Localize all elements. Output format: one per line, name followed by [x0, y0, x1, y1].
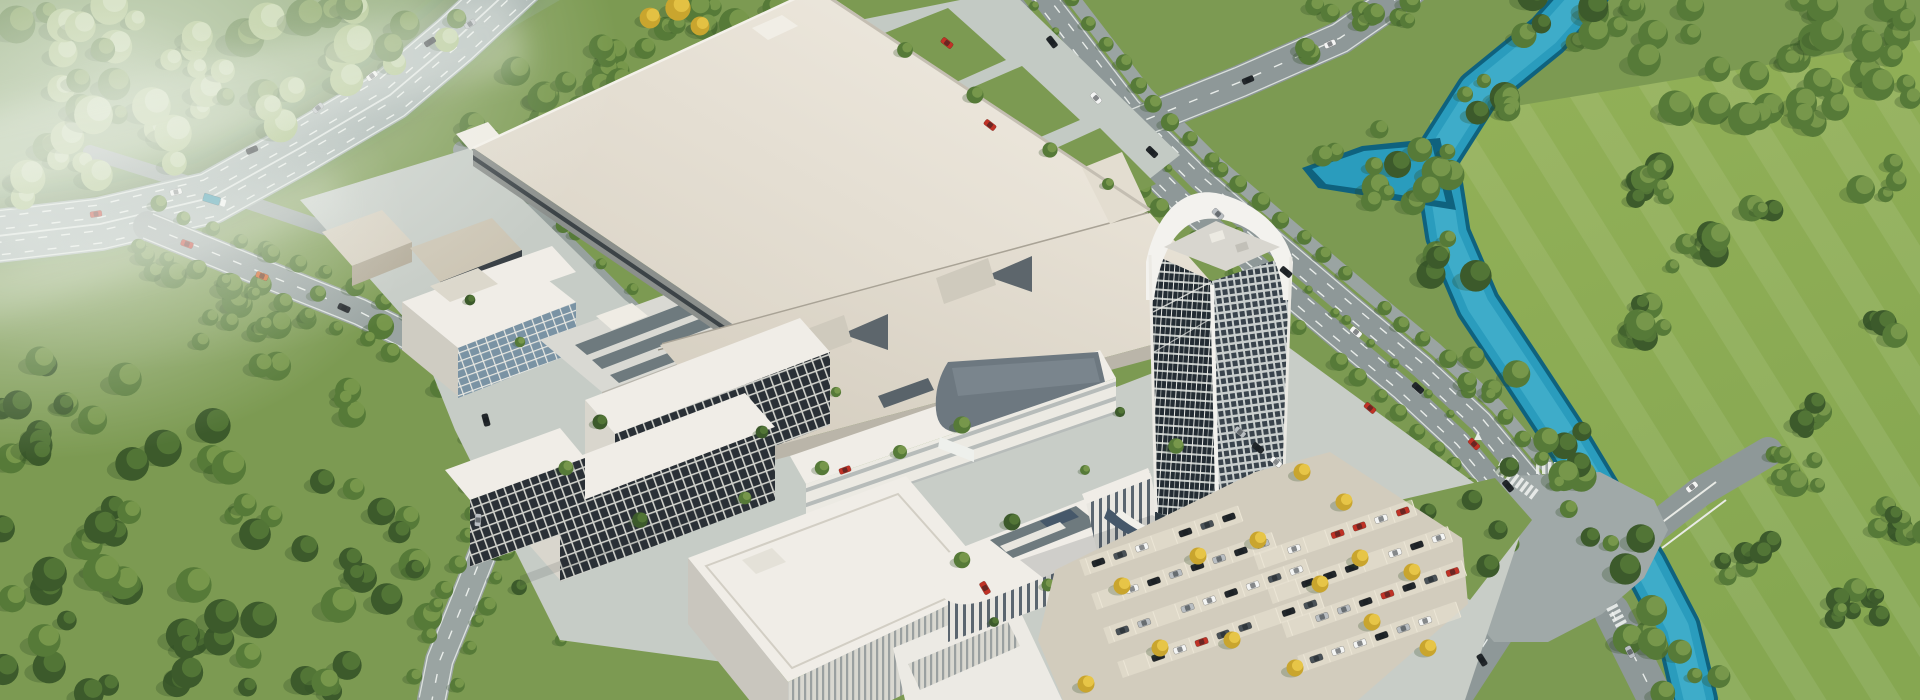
tree-highlight — [1218, 163, 1228, 173]
tree-highlight — [1862, 31, 1882, 51]
tree-highlight — [1838, 603, 1847, 612]
tree-highlight — [1445, 350, 1456, 361]
tree-highlight — [1343, 267, 1352, 276]
tree-highlight — [494, 572, 502, 580]
tree-highlight — [1209, 153, 1218, 162]
tree-highlight — [1646, 596, 1665, 615]
tree-highlight — [1831, 94, 1848, 111]
tree-highlight — [1376, 121, 1387, 132]
tree-highlight — [697, 17, 709, 29]
tree-highlight — [1709, 94, 1729, 114]
tree-highlight — [350, 565, 363, 578]
tree-highlight — [332, 588, 354, 610]
tree-highlight — [1796, 104, 1813, 121]
tree-highlight — [1876, 606, 1889, 619]
tree-highlight — [434, 599, 443, 608]
tree-highlight — [1083, 465, 1089, 471]
tree-highlight — [1470, 261, 1490, 281]
tree-highlight — [1769, 201, 1782, 214]
tree-highlight — [1296, 320, 1305, 329]
tree-highlight — [1739, 103, 1760, 124]
tree-highlight — [44, 558, 66, 580]
tree-highlight — [1851, 579, 1866, 594]
tree-highlight — [1715, 666, 1729, 680]
tree-highlight — [241, 494, 255, 508]
tree-highlight — [95, 556, 119, 580]
tree-highlight — [597, 415, 606, 424]
tree-highlight — [1538, 15, 1550, 27]
tree-highlight — [1856, 176, 1874, 194]
tree-highlight — [1903, 75, 1915, 87]
aerial-campus-rendering — [0, 0, 1920, 700]
tree-highlight — [321, 670, 338, 687]
tree-highlight — [441, 582, 452, 593]
tree-highlight — [1121, 55, 1131, 65]
tree-highlight — [1445, 231, 1455, 241]
tree-highlight — [455, 556, 466, 567]
tree-highlight — [1608, 536, 1618, 546]
tree-highlight — [1891, 324, 1907, 340]
tree-highlight — [1872, 69, 1892, 89]
tree-highlight — [1907, 88, 1920, 101]
tree-highlight — [1167, 114, 1178, 125]
tree-highlight — [396, 522, 410, 536]
tree-highlight — [1587, 528, 1599, 540]
tree-highlight — [834, 387, 840, 393]
tree-highlight — [959, 552, 969, 562]
tree-highlight — [1893, 171, 1906, 184]
tree-highlight — [1767, 532, 1781, 546]
tree-highlight — [340, 391, 351, 402]
tree-highlight — [1554, 477, 1564, 487]
tree-highlight — [972, 87, 983, 98]
tree-highlight — [1888, 45, 1902, 59]
tree-highlight — [125, 501, 140, 516]
tree-highlight — [426, 628, 436, 638]
tree-highlight — [1692, 669, 1701, 678]
tree-highlight — [1891, 507, 1902, 518]
tree-highlight — [1647, 628, 1665, 646]
tree-highlight — [1136, 78, 1146, 88]
tree-highlight — [1566, 501, 1577, 512]
tree-highlight — [318, 470, 333, 485]
tree-highlight — [1368, 192, 1381, 205]
tree-highlight — [412, 669, 422, 679]
tower-southwest-face — [1150, 253, 1218, 533]
tree-highlight — [1345, 315, 1351, 321]
tree-highlight — [1798, 410, 1813, 425]
tree-highlight — [1302, 231, 1311, 240]
tree-highlight — [1258, 193, 1270, 205]
tree-highlight — [1506, 458, 1518, 470]
tree-highlight — [1173, 439, 1183, 449]
rendering-canvas — [0, 0, 1920, 700]
tree-highlight — [1150, 96, 1161, 107]
tree-highlight — [1813, 69, 1831, 87]
tree-highlight — [1757, 542, 1771, 556]
tree-highlight — [1486, 389, 1495, 398]
tree-highlight — [1790, 471, 1807, 488]
tree-highlight — [1620, 554, 1640, 574]
tree-highlight — [1713, 57, 1729, 73]
tree-highlight — [641, 39, 654, 52]
tree-highlight — [1451, 458, 1461, 468]
tree-highlight — [1811, 393, 1824, 406]
tree-highlight — [244, 678, 256, 690]
tree-highlight — [1663, 189, 1673, 199]
tree-highlight — [1670, 260, 1679, 269]
tree-highlight — [743, 492, 751, 500]
tree-highlight — [1638, 44, 1659, 65]
tree-highlight — [1379, 390, 1387, 398]
tree-highlight — [1579, 423, 1591, 435]
tree-highlight — [1874, 590, 1883, 599]
tree-highlight — [1118, 407, 1124, 413]
tree-highlight — [84, 679, 103, 698]
tree-highlight — [1654, 160, 1666, 172]
tree-highlight — [1167, 165, 1172, 170]
tree-highlight — [1669, 92, 1690, 113]
tree-highlight — [1086, 17, 1095, 26]
tree-highlight — [1474, 102, 1489, 117]
tree-highlight — [1636, 525, 1654, 543]
tree-highlight — [223, 452, 244, 473]
tree-highlight — [1327, 5, 1339, 17]
tree-highlight — [1812, 453, 1822, 463]
tree-highlight — [8, 586, 25, 603]
tree-highlight — [1277, 212, 1288, 223]
tree-highlight — [1321, 247, 1331, 257]
tree-highlight — [350, 479, 364, 493]
tree-highlight — [1520, 431, 1530, 441]
tree-highlight — [959, 417, 970, 428]
tree-highlight — [1432, 157, 1451, 176]
tree-highlight — [244, 644, 260, 660]
tree-highlight — [1687, 25, 1700, 38]
tree-highlight — [1632, 190, 1644, 202]
tree-highlight — [455, 679, 464, 688]
tree-highlight — [646, 8, 659, 21]
tree-highlight — [1834, 588, 1849, 603]
tree-highlight — [268, 506, 282, 520]
tree-highlight — [1422, 177, 1439, 194]
tree-highlight — [1495, 521, 1507, 533]
tree-highlight — [1416, 138, 1431, 153]
tree-highlight — [898, 446, 907, 455]
tree-highlight — [1009, 514, 1020, 525]
tree-highlight — [1648, 21, 1667, 40]
tree-highlight — [1435, 442, 1445, 452]
tree-highlight — [1355, 369, 1367, 381]
tree-highlight — [1333, 309, 1339, 315]
tree-highlight — [760, 426, 768, 434]
tree-highlight — [1724, 568, 1735, 579]
tree-highlight — [300, 536, 317, 553]
tree-highlight — [1336, 353, 1347, 364]
tree-highlight — [1821, 19, 1842, 40]
tree-highlight — [1815, 479, 1824, 488]
tree-highlight — [1758, 202, 1768, 212]
tree-highlight — [1384, 185, 1394, 195]
tree-highlight — [1106, 179, 1113, 186]
tree-highlight — [1468, 491, 1481, 504]
tree-highlight — [631, 284, 638, 291]
tree-highlight — [342, 652, 360, 670]
tree-highlight — [1420, 332, 1430, 342]
tree-highlight — [188, 569, 210, 591]
tree-highlight — [1637, 296, 1648, 307]
tree-highlight — [1464, 373, 1476, 385]
tree-highlight — [820, 461, 829, 470]
tree-highlight — [475, 615, 483, 623]
tree-highlight — [403, 507, 418, 522]
tree-highlight — [387, 344, 399, 356]
tree-highlight — [1434, 247, 1448, 261]
tree-highlight — [381, 584, 401, 604]
tree-highlight — [1405, 14, 1414, 23]
tree-highlight — [182, 658, 202, 678]
tree-highlight — [1470, 347, 1484, 361]
tree-highlight — [1393, 152, 1410, 169]
tree-highlight — [1503, 410, 1513, 420]
tree-highlight — [1187, 132, 1197, 142]
tree-highlight — [63, 611, 75, 623]
tree-highlight — [347, 548, 361, 562]
tree-highlight — [637, 513, 647, 523]
tree-highlight — [1104, 37, 1113, 46]
tree-highlight — [377, 499, 394, 516]
tree-highlight — [902, 43, 912, 53]
tree-highlight — [599, 259, 606, 266]
tree-highlight — [1481, 74, 1490, 83]
tree-highlight — [216, 600, 238, 622]
tree-highlight — [484, 598, 496, 610]
tree-highlight — [1711, 224, 1729, 242]
tree-highlight — [1900, 9, 1914, 23]
tree-highlight — [250, 520, 270, 540]
tree-highlight — [1449, 410, 1454, 415]
tree-highlight — [1484, 555, 1498, 569]
tree-highlight — [1462, 87, 1472, 97]
tree-highlight — [1504, 104, 1515, 115]
tree-highlight — [1395, 405, 1406, 416]
tree-highlight — [1393, 359, 1399, 365]
tree-highlight — [1371, 4, 1384, 17]
tree-highlight — [1371, 158, 1382, 169]
tree-highlight — [1850, 603, 1860, 613]
tree-highlight — [1539, 452, 1548, 461]
tree-highlight — [1302, 39, 1315, 52]
tree-highlight — [1032, 1, 1038, 7]
tree-highlight — [1614, 17, 1627, 30]
tree-highlight — [1319, 146, 1332, 159]
tree-highlight — [518, 337, 524, 343]
tree-highlight — [1382, 302, 1391, 311]
tree-highlight — [1235, 176, 1246, 187]
tree-highlight — [1512, 361, 1529, 378]
tree-highlight — [1659, 682, 1674, 697]
tree-highlight — [252, 603, 275, 626]
tree-highlight — [1749, 62, 1767, 80]
tree-highlight — [182, 636, 197, 651]
tree-highlight — [467, 641, 476, 650]
tree-highlight — [1636, 312, 1654, 330]
tree-highlight — [1890, 154, 1902, 166]
tree-highlight — [1399, 317, 1409, 327]
tree-highlight — [1156, 199, 1168, 211]
tree-highlight — [1369, 339, 1375, 345]
car — [474, 513, 481, 526]
tree-highlight — [1427, 390, 1433, 396]
tree-highlight — [992, 617, 998, 623]
tree-highlight — [563, 461, 572, 470]
tree-highlight — [1780, 447, 1791, 458]
tree-highlight — [1445, 144, 1455, 154]
tree-highlight — [1560, 433, 1577, 450]
tree-highlight — [1047, 143, 1056, 152]
tree-highlight — [1425, 504, 1436, 515]
tree-highlight — [105, 675, 118, 688]
tree-highlight — [1777, 470, 1788, 481]
tree-highlight — [1542, 428, 1558, 444]
tree-highlight — [1589, 20, 1608, 39]
tree-highlight — [1676, 640, 1691, 655]
tree-highlight — [412, 560, 424, 572]
tree-highlight — [1414, 425, 1424, 435]
tree-highlight — [1307, 286, 1312, 291]
tree-highlight — [1660, 320, 1670, 330]
tree-highlight — [1054, 28, 1059, 33]
tree-highlight — [468, 295, 475, 302]
